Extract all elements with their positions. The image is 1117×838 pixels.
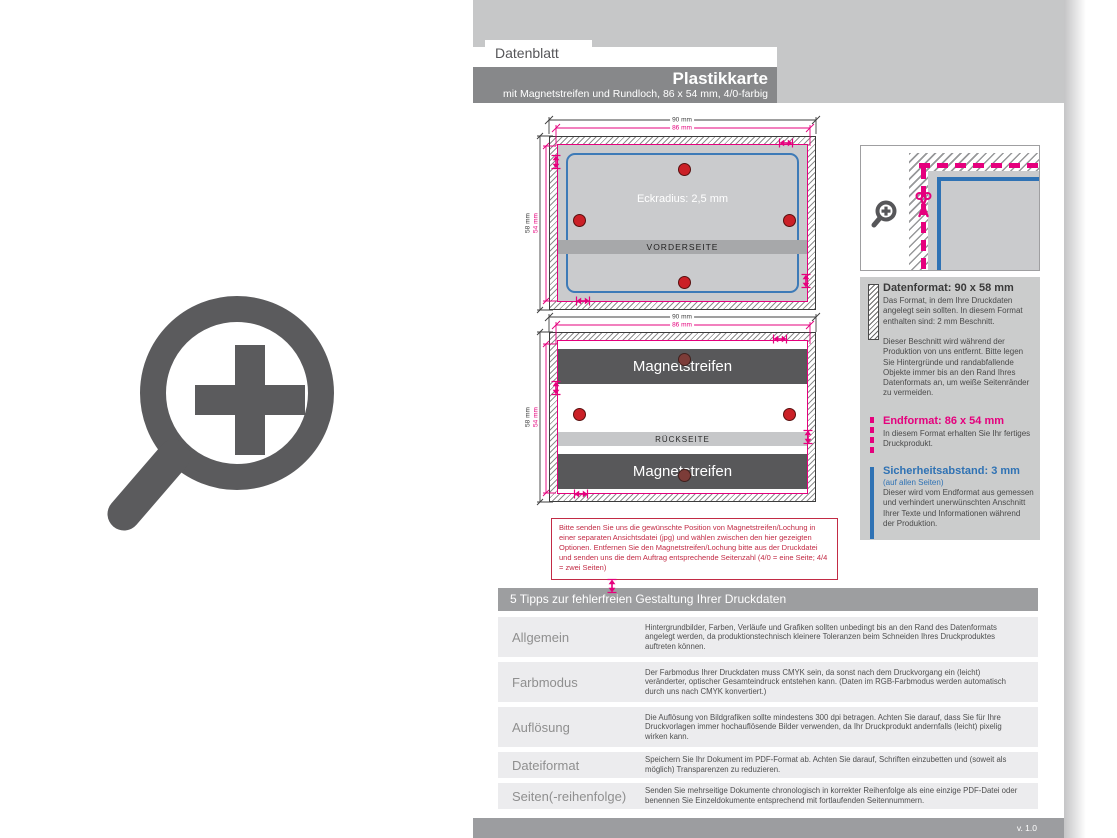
- tips-row-seitenreihenfolge: Seiten(-reihenfolge) Senden Sie mehrseit…: [498, 783, 1038, 809]
- safety-title: Sicherheitsabstand: 3 mm: [883, 465, 1020, 477]
- format-info-panel: Datenformat: 90 x 58 mm Das Format, in d…: [860, 277, 1040, 540]
- front-side-band: VORDERSEITE: [558, 240, 807, 254]
- tip-text: Senden Sie mehrseitige Dokumente chronol…: [645, 786, 1023, 805]
- dim-label-back-inner-width: 86 mm: [670, 322, 694, 329]
- round-hole: [783, 214, 796, 227]
- dim-label-back-outer-width: 90 mm: [670, 314, 694, 321]
- scissors-icon: [917, 193, 931, 216]
- tips-row-allgemein: Allgemein Hintergrundbilder, Farben, Ver…: [498, 617, 1038, 657]
- corner-radius-label: Eckradius: 2,5 mm: [558, 193, 807, 205]
- datenformat-body2: Dieser Beschnitt wird während der Produk…: [883, 337, 1034, 399]
- tip-label: Dateiformat: [498, 758, 645, 773]
- dim-label-back-inner-height: 54 mm: [533, 405, 540, 429]
- tips-row-aufloesung: Auflösung Die Auflösung von Bildgrafiken…: [498, 707, 1038, 747]
- round-hole: [573, 408, 586, 421]
- tip-text: Speichern Sie Ihr Dokument im PDF-Format…: [645, 755, 1023, 774]
- version-label: v. 1.0: [1017, 823, 1037, 833]
- datenformat-title: Datenformat: 90 x 58 mm: [883, 282, 1014, 294]
- endformat-title: Endformat: 86 x 54 mm: [883, 415, 1004, 427]
- page-title: Plastikkarte: [473, 67, 777, 88]
- dim-label-back-outer-height: 58 mm: [525, 405, 532, 429]
- dim-label-front-inner-height: 54 mm: [533, 211, 540, 235]
- front-card-area: Eckradius: 2,5 mm VORDERSEITE: [557, 144, 808, 302]
- tip-label: Auflösung: [498, 720, 645, 735]
- endformat-line-icon: [870, 417, 874, 455]
- back-side-band: RÜCKSEITE: [558, 432, 807, 446]
- title-bar: Plastikkarte mit Magnetstreifen und Rund…: [473, 67, 777, 103]
- tab-label: Datenblatt: [495, 45, 559, 61]
- dim-label-front-inner-width: 86 mm: [670, 125, 694, 132]
- front-card-diagram: Eckradius: 2,5 mm VORDERSEITE: [549, 136, 816, 310]
- tips-row-farbmodus: Farbmodus Der Farbmodus Ihrer Druckdaten…: [498, 662, 1038, 702]
- round-hole-hidden: [678, 353, 691, 366]
- page-drop-shadow: [1064, 0, 1086, 838]
- page-subtitle: mit Magnetstreifen und Rundloch, 86 x 54…: [473, 88, 777, 101]
- back-card-diagram: Magnetstreifen RÜCKSEITE Magnetstreifen: [549, 332, 816, 502]
- round-hole: [783, 408, 796, 421]
- safety-line-icon: [870, 467, 874, 539]
- tips-row-dateiformat: Dateiformat Speichern Sie Ihr Dokument i…: [498, 752, 1038, 778]
- round-hole-hidden: [678, 469, 691, 482]
- corner-detail-box: [860, 145, 1040, 271]
- round-hole: [678, 276, 691, 289]
- screenshot-root: { "header": { "tab": "Datenblatt", "titl…: [0, 0, 1117, 838]
- bleed-hatch-icon: [868, 284, 879, 340]
- endformat-body: In diesem Format erhalten Sie Ihr fertig…: [883, 429, 1034, 450]
- dim-label-front-outer-width: 90 mm: [670, 117, 694, 124]
- tip-text: Der Farbmodus Ihrer Druckdaten muss CMYK…: [645, 668, 1023, 697]
- dim-label-front-outer-height: 58 mm: [525, 211, 532, 235]
- footer-bar: v. 1.0: [473, 818, 1064, 838]
- datenformat-body: Das Format, in dem Ihre Druckdaten angel…: [883, 296, 1034, 327]
- tip-text: Die Auflösung von Bildgrafiken sollte mi…: [645, 713, 1023, 742]
- round-hole: [678, 163, 691, 176]
- tip-text: Hintergrundbilder, Farben, Verläufe und …: [645, 623, 1023, 652]
- tip-label: Seiten(-reihenfolge): [498, 789, 645, 804]
- back-side-label: RÜCKSEITE: [655, 435, 710, 444]
- tips-header: 5 Tipps zur fehlerfreien Gestaltung Ihre…: [498, 588, 1038, 611]
- safety-body: Dieser wird vom Endformat aus gemessen u…: [883, 488, 1034, 529]
- tip-label: Allgemein: [498, 630, 645, 645]
- zoom-plus-icon: [90, 262, 390, 542]
- note-box: Bitte senden Sie uns die gewünschte Posi…: [551, 518, 838, 580]
- document-page: Datenblatt Plastikkarte mit Magnetstreif…: [473, 0, 1064, 838]
- datenblatt-tab: Datenblatt: [485, 40, 592, 67]
- back-card-area: Magnetstreifen RÜCKSEITE Magnetstreifen: [557, 340, 808, 494]
- round-hole: [573, 214, 586, 227]
- safety-subtitle: (auf allen Seiten): [883, 478, 1034, 488]
- zoom-plus-icon: [874, 203, 895, 226]
- front-side-label: VORDERSEITE: [647, 242, 719, 252]
- tip-label: Farbmodus: [498, 675, 645, 690]
